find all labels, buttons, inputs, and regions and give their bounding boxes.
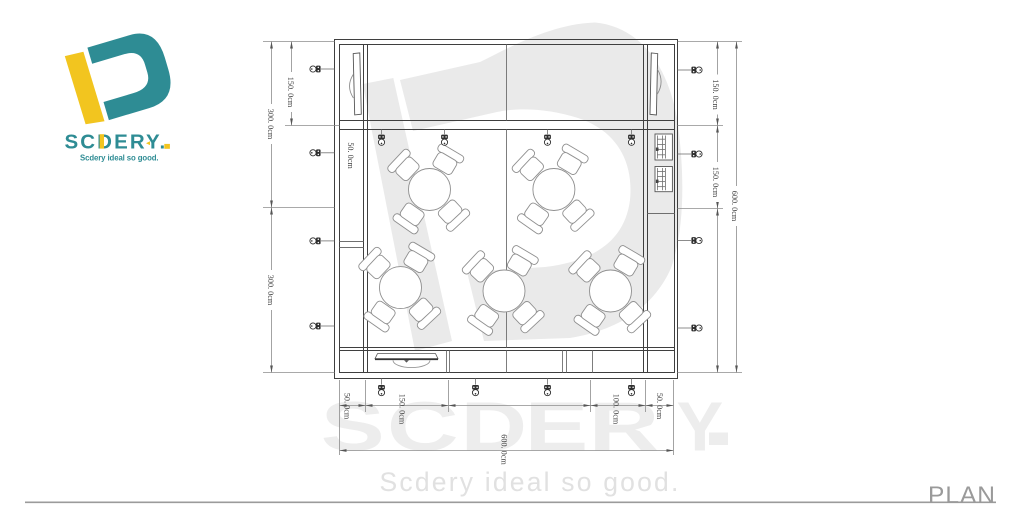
svg-text:150. 0cm: 150. 0cm [711,79,720,110]
svg-text:D: D [461,388,527,466]
svg-text:100. 0cm: 100. 0cm [612,394,621,425]
svg-text:50. 0cm: 50. 0cm [343,393,352,420]
svg-text:150. 0cm: 150. 0cm [286,77,295,108]
svg-text:600. 0cm: 600. 0cm [730,191,739,222]
svg-text:Scdery ideal so good.: Scdery ideal so good. [80,153,159,162]
svg-text:S: S [321,387,385,465]
svg-text:SCDERY.: SCDERY. [65,131,168,154]
svg-text:50. 0cm: 50. 0cm [655,393,664,420]
svg-text:50. 0cm: 50. 0cm [346,142,355,169]
svg-text:150. 0cm: 150. 0cm [711,167,720,198]
svg-text:150. 0cm: 150. 0cm [398,394,407,425]
svg-text:600. 0cm: 600. 0cm [500,434,509,465]
svg-text:E: E [525,387,589,466]
svg-text:Y: Y [677,388,724,466]
svg-text:300. 0cm: 300. 0cm [266,275,275,306]
svg-text:Scdery ideal so good.: Scdery ideal so good. [380,467,681,497]
svg-text:300. 0cm: 300. 0cm [266,109,275,140]
svg-text:PLAN: PLAN [928,482,996,509]
